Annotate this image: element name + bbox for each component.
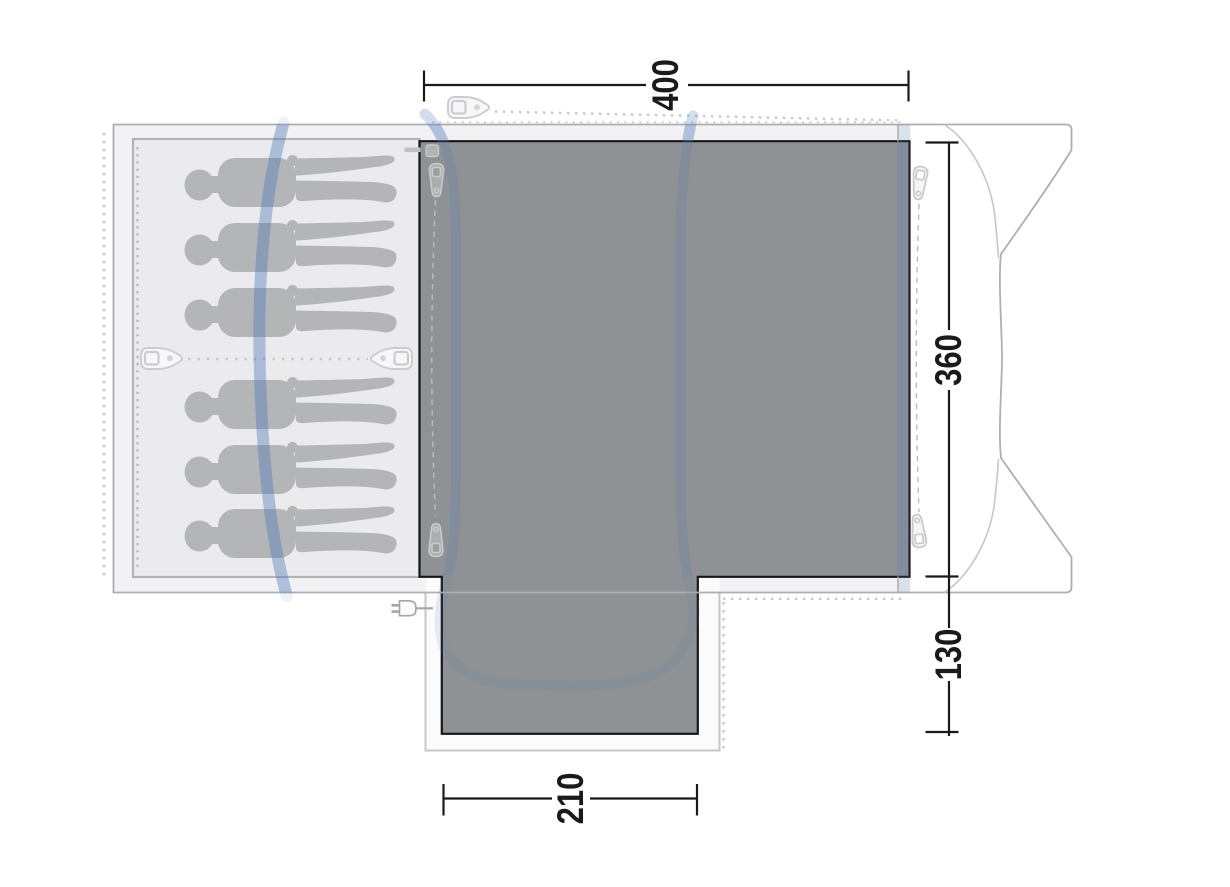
svg-text:210: 210 (550, 773, 591, 825)
svg-text:400: 400 (645, 59, 686, 111)
svg-text:130: 130 (928, 629, 969, 681)
svg-text:360: 360 (928, 334, 969, 386)
